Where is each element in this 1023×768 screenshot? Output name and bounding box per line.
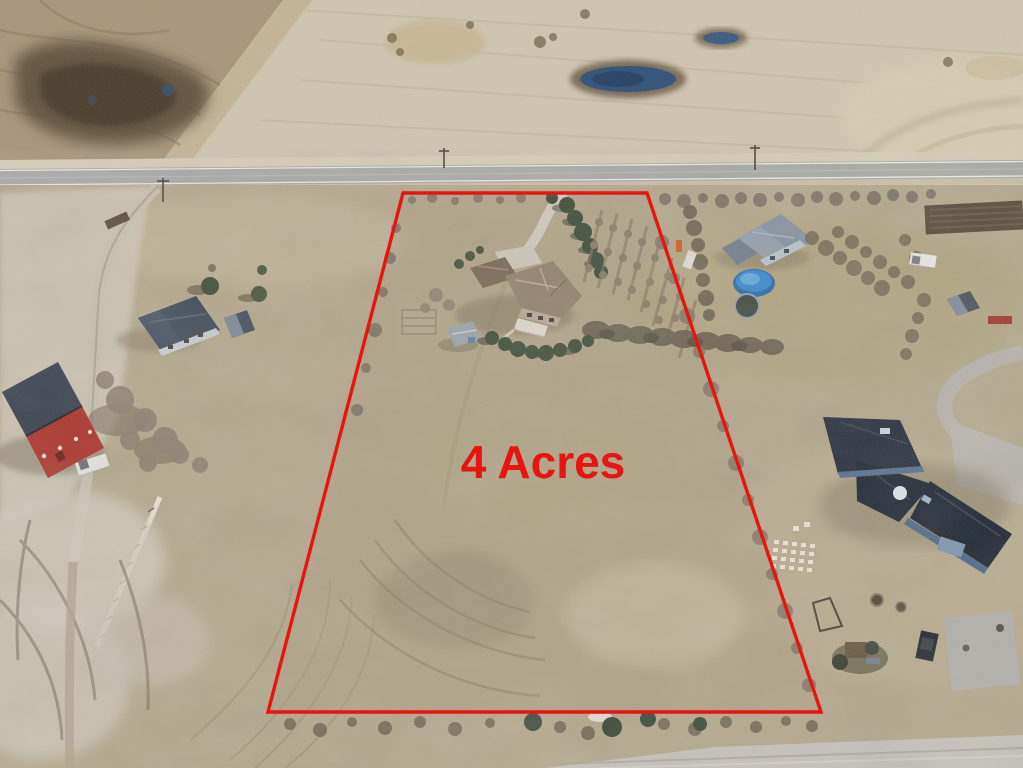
aerial-photo-canvas: 4 Acres: [0, 0, 1023, 768]
aerial-photo: 4 Acres: [0, 0, 1023, 768]
texture-overlay-fine: [0, 0, 1023, 768]
acreage-label: 4 Acres: [461, 436, 626, 488]
